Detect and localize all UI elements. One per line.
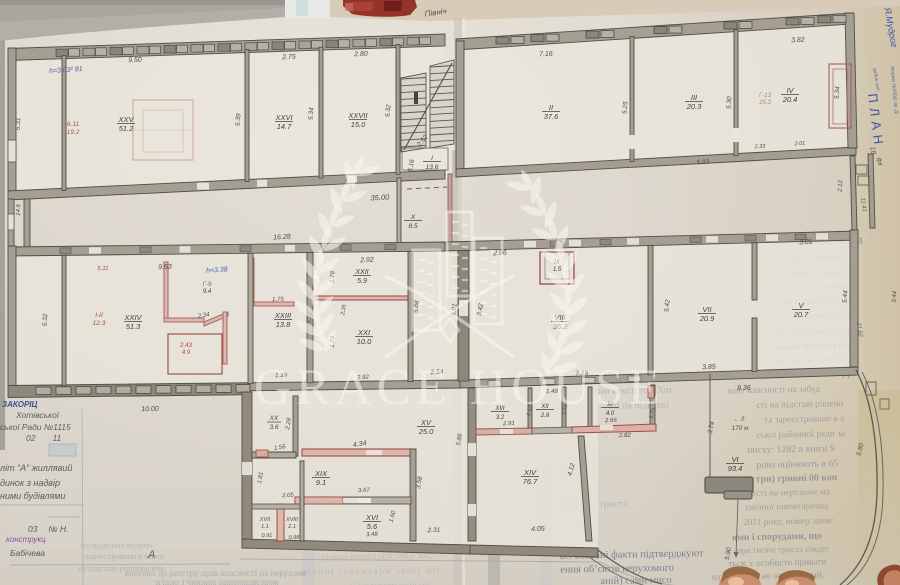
svg-text:2.01: 2.01 — [793, 141, 805, 148]
svg-text:2.66: 2.66 — [604, 418, 618, 425]
svg-text:XIV: XIV — [523, 468, 537, 477]
svg-text:9.53: 9.53 — [158, 264, 172, 271]
svg-text:9.4: 9.4 — [203, 289, 212, 295]
svg-text:1.1: 1.1 — [261, 524, 269, 530]
svg-text:5.34: 5.34 — [307, 107, 315, 121]
svg-text:13.8: 13.8 — [276, 320, 291, 329]
svg-text:5.34: 5.34 — [833, 86, 841, 100]
svg-text:170 м: 170 м — [731, 425, 749, 432]
svg-text:10.0: 10.0 — [357, 337, 372, 346]
svg-text:II: II — [549, 103, 553, 112]
svg-text:8.36: 8.36 — [737, 385, 751, 392]
svg-text:3.85: 3.85 — [702, 364, 716, 371]
svg-text:2.43: 2.43 — [179, 343, 192, 349]
svg-text:2.33: 2.33 — [753, 144, 766, 151]
svg-text:51.3: 51.3 — [126, 322, 141, 331]
svg-text:20.3: 20.3 — [686, 102, 702, 111]
svg-text:I: I — [431, 155, 433, 162]
svg-text:зареєстровано в книзі: зареєстровано в книзі — [85, 551, 164, 561]
svg-text:ними будівлями: ними будівлями — [0, 491, 65, 501]
svg-text:35.00: 35.00 — [370, 192, 390, 202]
svg-text:2.05: 2.05 — [281, 493, 295, 500]
svg-text:1.5: 1.5 — [553, 267, 562, 273]
svg-text:Г-9: Г-9 — [203, 282, 212, 288]
svg-text:3.44: 3.44 — [892, 290, 899, 303]
svg-text:20.9: 20.9 — [699, 314, 715, 323]
svg-text:3.6: 3.6 — [269, 424, 278, 431]
svg-text:5.93: 5.93 — [696, 159, 709, 167]
svg-text:6.11: 6.11 — [67, 121, 80, 128]
svg-text:XX: XX — [269, 415, 279, 422]
svg-text:9.50: 9.50 — [128, 57, 142, 64]
svg-text:XVIII: XVIII — [285, 517, 298, 523]
svg-text:ської Ради №1115: ської Ради №1115 — [0, 422, 71, 432]
svg-text:ення об’єктів нерухомого: ення об’єктів нерухомого — [560, 563, 674, 576]
svg-text:XXVI: XXVI — [274, 113, 292, 122]
svg-text:20.7: 20.7 — [793, 310, 809, 319]
svg-text:ЗАКОРІЦ: ЗАКОРІЦ — [2, 400, 38, 409]
svg-text:Г-13: Г-13 — [759, 93, 772, 99]
svg-text:2.82: 2.82 — [618, 433, 632, 440]
svg-text:9.1: 9.1 — [316, 478, 326, 487]
svg-text:5.42: 5.42 — [663, 299, 671, 313]
svg-text:та зареєстровано в х: та зареєстровано в х — [764, 414, 845, 426]
svg-text:нічної інвентари зації міс: нічної інвентари зації міс — [331, 581, 431, 585]
svg-text:76.7: 76.7 — [523, 477, 538, 486]
svg-text:динок з надвір: динок з надвір — [0, 478, 60, 488]
svg-text:3.82: 3.82 — [791, 37, 805, 45]
svg-text:1.75: 1.75 — [272, 297, 285, 304]
svg-text:Бабічева: Бабічева — [10, 548, 45, 558]
svg-text:писку: 1282 в книзі 9: писку: 1282 в книзі 9 — [747, 443, 835, 456]
svg-text:2.31: 2.31 — [427, 527, 441, 534]
svg-text:рова оцінюють в 65: рова оцінюють в 65 — [756, 458, 838, 471]
svg-text:2011 року, номер запис: 2011 року, номер запис — [743, 516, 834, 528]
svg-text:0.91: 0.91 — [262, 533, 273, 539]
svg-text:VII: VII — [702, 305, 711, 314]
svg-text:посвідчення видано: посвідчення видано — [80, 540, 152, 550]
svg-text:← д: ← д — [734, 417, 746, 423]
svg-text:7.16: 7.16 — [539, 51, 553, 59]
svg-text:93.4: 93.4 — [728, 464, 743, 473]
svg-text:3.67: 3.67 — [358, 488, 371, 495]
svg-text:37.6: 37.6 — [544, 112, 559, 121]
svg-text:14.6: 14.6 — [16, 203, 22, 216]
svg-text:5.6: 5.6 — [367, 522, 378, 531]
svg-text:XVII: XVII — [259, 517, 271, 523]
svg-text:XXIV: XXIV — [123, 313, 142, 322]
svg-text:02 11: 02 11 — [26, 433, 62, 443]
svg-text:51.2: 51.2 — [119, 124, 134, 133]
svg-text:5.9: 5.9 — [357, 278, 367, 285]
svg-text:14.7: 14.7 — [277, 122, 292, 131]
svg-text:ської районної ради за: ської районної ради за — [756, 428, 845, 441]
svg-text:хнічної інвентаризац: хнічної інвентаризац — [745, 501, 828, 513]
svg-text:10.00: 10.00 — [141, 406, 159, 414]
svg-text:2.12: 2.12 — [838, 179, 845, 193]
svg-text:Хотівської: Хотівської — [15, 410, 60, 420]
svg-text:15.0: 15.0 — [351, 120, 366, 129]
svg-text:2.92: 2.92 — [359, 257, 374, 265]
svg-text:5.44: 5.44 — [841, 290, 849, 304]
svg-text:2.91: 2.91 — [502, 421, 515, 428]
svg-text:25.0: 25.0 — [418, 427, 434, 436]
svg-text:2.75: 2.75 — [281, 54, 296, 62]
svg-text:5.32: 5.32 — [384, 104, 392, 118]
svg-text:XXVII: XXVII — [347, 111, 367, 120]
svg-text:4.05: 4.05 — [531, 526, 545, 533]
svg-text:5.25: 5.25 — [621, 101, 629, 115]
svg-text:15.3: 15.3 — [759, 100, 771, 106]
svg-text:0.98: 0.98 — [289, 535, 301, 541]
svg-text:сті на підставі рішенн: сті на підставі рішенн — [757, 399, 844, 411]
svg-text:5.39: 5.39 — [234, 113, 242, 127]
svg-text:12.3: 12.3 — [93, 320, 106, 327]
svg-text:5.32: 5.32 — [42, 313, 49, 326]
svg-text:ями і спорудами, що: ями і спорудами, що — [732, 530, 822, 543]
svg-text:XXIII: XXIII — [274, 311, 291, 320]
svg-text:XV: XV — [420, 418, 432, 427]
svg-text:III: III — [691, 93, 697, 102]
svg-text:згідно з чинним законодавством: згідно з чинним законодавством — [155, 577, 279, 585]
svg-text:5.11: 5.11 — [97, 266, 108, 272]
svg-text:І-ІІ: І-ІІ — [95, 312, 103, 319]
svg-text:16.28: 16.28 — [273, 234, 291, 242]
svg-text:GRACE HOUSE: GRACE HOUSE — [254, 360, 665, 416]
svg-text:ори тисячі триста сімдес: ори тисячі триста сімдес — [737, 543, 830, 555]
svg-text:4.9: 4.9 — [182, 350, 191, 356]
svg-text:XIX: XIX — [314, 469, 328, 478]
svg-text:19.2: 19.2 — [67, 129, 80, 136]
svg-text:5.30: 5.30 — [725, 96, 733, 110]
svg-text:13.6: 13.6 — [426, 164, 439, 171]
svg-text:XVI: XVI — [365, 513, 378, 522]
svg-text:XXII: XXII — [354, 269, 368, 276]
svg-text:XXV: XXV — [117, 115, 134, 124]
svg-text:IV: IV — [786, 86, 794, 95]
svg-text:конструкц: конструкц — [6, 535, 46, 544]
svg-text:5.31: 5.31 — [15, 117, 22, 130]
svg-text:XXI: XXI — [357, 328, 370, 337]
svg-text:8.5: 8.5 — [408, 223, 417, 230]
svg-text:03 № Н.: 03 № Н. — [28, 524, 68, 534]
svg-text:VI: VI — [731, 455, 738, 464]
svg-text:ності на нерухоме ма: ності на нерухоме ма — [746, 487, 830, 499]
svg-text:3.81: 3.81 — [799, 239, 813, 247]
svg-text:X: X — [410, 214, 416, 221]
svg-text:20.4: 20.4 — [782, 95, 798, 104]
svg-text:2.1: 2.1 — [287, 524, 296, 530]
svg-text:2.80: 2.80 — [353, 51, 368, 59]
svg-text:3.48: 3.48 — [366, 532, 379, 538]
svg-text:літ “А” жиллявий: літ “А” жиллявий — [0, 463, 72, 473]
